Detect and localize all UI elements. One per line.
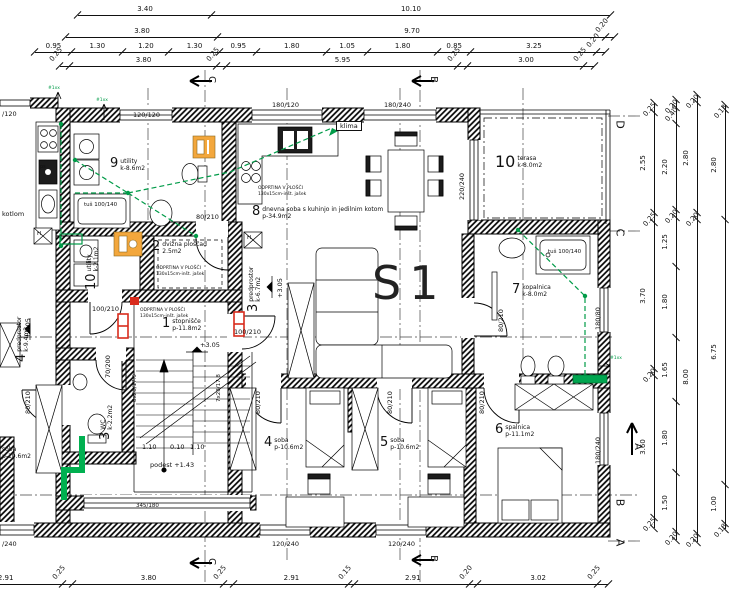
dim-value: 1.20 (138, 42, 154, 50)
room-number: 7 (512, 284, 520, 296)
dim-value: 3.80 (141, 574, 157, 582)
room-name: predprostor (248, 267, 255, 302)
dim-segment: 0.25 (641, 518, 654, 528)
stair-spec: 7x28/17.8 (216, 374, 222, 402)
dim-chain-top-1: 3.4010.10 (78, 2, 610, 16)
dim-value: 5.95 (335, 56, 351, 64)
room-area: k-6.7m2 (255, 267, 262, 302)
opening-label: 345/180 (136, 503, 159, 509)
dim-value: 2.80 (682, 150, 690, 166)
room-label-living8: 8 dnevna soba s kuhinjo in jedilnim koto… (252, 206, 383, 220)
dim-segment: 1.05 (327, 39, 368, 52)
dim-chain-bottom-1: 2.910.253.800.252.910.152.910.203.020.25 (0, 571, 608, 585)
window-label: 180/240 (594, 437, 602, 464)
stair-dim: 1.10 (142, 443, 156, 451)
h-label: H (37, 231, 41, 237)
dim-chain-top-3: 0.951.301.201.300.951.801.051.800.853.25… (35, 39, 605, 53)
dim-segment: 3.02 (478, 571, 598, 584)
dim-segment: 1.50 (663, 473, 676, 532)
door-label: 80/210 (386, 391, 394, 414)
dim-segment: 3.80 (66, 24, 218, 37)
dim-value: 3.40 (137, 5, 153, 13)
dim-segment: 1.80 (663, 267, 676, 338)
room-label-soba5: 5 sobap-10.6m2 (380, 437, 419, 451)
section-letter: C (206, 558, 217, 565)
dim-segment: 1.80 (257, 39, 327, 52)
room-name: predprostor (16, 317, 23, 352)
dim-segment: 0.20 (606, 24, 614, 37)
note-line1: ODPRTINA V PLOŠČI (156, 266, 201, 271)
room-area: p-11.1m2 (505, 431, 534, 438)
room-label-utility10-small: 10 utilityk-2.1m2 (86, 247, 100, 290)
dim-segment: 1.80 (663, 402, 676, 473)
room-number: 6 (495, 424, 503, 436)
room-label-spalnica6: 6 spalnicap-11.1m2 (495, 424, 534, 438)
dim-segment: 1.00 (712, 485, 725, 524)
room-name: soba (390, 437, 419, 444)
section-letter: B (428, 76, 439, 83)
window-label: /120 (2, 110, 17, 118)
dim-value: 3.70 (639, 288, 647, 304)
door-label: 80/210 (196, 213, 219, 221)
dim-segment: 6.75 (712, 220, 725, 485)
room-number: 4 (16, 354, 28, 362)
dim-segment: 0.25 (584, 53, 594, 66)
room-area: p-11.8m2 (172, 325, 201, 332)
dim-value: 3.25 (526, 42, 542, 50)
room-area: 2.5m2 (162, 248, 207, 255)
stair-dim: 1.10 (190, 443, 204, 451)
level-label: +3.05 (200, 341, 220, 349)
axis-letter-c: C (613, 229, 626, 237)
landing-label: podest +1.43 (150, 461, 194, 469)
dim-value: 3.00 (518, 56, 534, 64)
stair-dim: 0.10 (170, 443, 184, 451)
dim-segment: 0.25 (60, 53, 70, 66)
riser-label: #1xx (48, 86, 60, 91)
room-number: 2 (152, 241, 160, 253)
room-area: k-2.1m2 (93, 247, 100, 272)
room-area: k-8.0m2 (517, 162, 542, 169)
kitchen-counter-left (36, 122, 60, 230)
dim-segment: 0.20 (684, 534, 697, 542)
dim-segment: 2.91 (234, 571, 349, 584)
window-label: 180/120 (272, 101, 299, 109)
dim-value: 3.80 (136, 56, 152, 64)
window-label: 120/240 (272, 540, 299, 548)
window-label: 120/240 (388, 540, 415, 548)
cut-text: kotlom (2, 210, 24, 218)
window-label: 180/240 (384, 101, 411, 109)
section-letter: B (428, 555, 439, 562)
room-number: 4 (264, 437, 272, 449)
shower-label: tuš 100/140 (84, 202, 117, 208)
room-area: p-10.6m2 (2, 453, 31, 460)
dim-value: 8.00 (682, 369, 690, 385)
room-number: 5 (380, 437, 388, 449)
room-number: 8 (252, 206, 260, 218)
dim-chain-top-2: 3.809.700.20 (66, 24, 614, 38)
dim-segment: 8.00 (684, 220, 697, 534)
door-label: 100/210 (234, 328, 261, 336)
dim-segment: 3.40 (78, 2, 212, 15)
apartment-id: S1 (372, 256, 446, 310)
floor-plan-canvas: S1 9 utilityk-8.6m2 8 dnevna soba s kuhi… (0, 0, 748, 600)
dim-value: 0.95 (230, 42, 246, 50)
desks (286, 474, 464, 527)
dim-value: 1.80 (661, 294, 669, 310)
room-area: p-34.9m2 (262, 213, 383, 220)
slab-opening-note: ODPRTINA V PLOŠČI 130x15cm-inšt. jašek (156, 266, 204, 278)
dim-segment: 0.25 (458, 53, 468, 66)
dim-value: 1.50 (661, 495, 669, 511)
h-label: H (247, 235, 251, 241)
dim-segment: 0.25 (224, 571, 234, 584)
shower-label: tuš 100/140 (548, 249, 581, 255)
room-area: p-10.6m2 (274, 444, 303, 451)
dim-value: 1.80 (395, 42, 411, 50)
dim-value: 9.70 (404, 27, 420, 35)
window-label: /240 (2, 540, 17, 548)
dim-chain-right-1: 0.252.550.253.700.203.600.25 (641, 103, 655, 528)
dim-segment: 9.70 (218, 24, 606, 37)
level-label: +3.05 (24, 318, 32, 338)
dim-value: 2.91 (284, 574, 300, 582)
dim-chain-right-2: 0.200.402.200.201.251.801.651.801.500.20 (663, 100, 677, 540)
room-name: utility (120, 158, 145, 165)
dim-segment: 3.80 (70, 53, 218, 66)
dim-segment: 5.95 (227, 53, 458, 66)
door-label: 100/210 (92, 305, 119, 313)
window-label: 120/120 (133, 111, 160, 119)
dim-chain-right-3: 0.202.800.208.000.20 (684, 95, 698, 542)
riser-label: #1xx (96, 98, 108, 103)
note-line2: 130x15cm-inšt. jašek (140, 314, 188, 319)
klima-label: klima (336, 121, 362, 131)
room-label-soba4: 4 sobap-10.6m2 (264, 437, 303, 451)
dim-segment: 10.10 (212, 2, 610, 15)
door-label: 80/210 (24, 391, 32, 414)
room-name: dnevna soba s kuhinjo in jedilnim kotom (262, 206, 383, 213)
room-area: k-2.2m2 (107, 405, 114, 430)
dim-segment: 1.65 (663, 338, 676, 403)
room-number: 10 (86, 273, 98, 290)
dim-chain-right-4: 0.132.806.751.000.13 (712, 105, 726, 529)
room-label-lift2: 2 dvižna ploščad2.5m2 (152, 241, 207, 255)
ps-label: ps (40, 164, 46, 170)
dim-value: 1.25 (661, 235, 669, 251)
dim-segment: 1.30 (72, 39, 123, 52)
dim-segment: 0.95 (220, 39, 257, 52)
section-letter: C (206, 76, 217, 83)
riser-label: #1xx (610, 356, 622, 361)
dim-segment: 1.80 (368, 39, 438, 52)
stair-spec: 8x28/17.9 (132, 374, 138, 402)
room-label-stair1: 1 stopniščep-11.8m2 (162, 318, 201, 332)
dim-chain-top-4: 0.253.800.255.950.253.000.25 (60, 53, 594, 67)
dim-value: 3.02 (530, 574, 546, 582)
dim-segment: 0.20 (663, 532, 676, 540)
dim-segment: 0.25 (598, 571, 608, 584)
section-letter: A (632, 443, 643, 450)
door-label: 80/210 (254, 391, 262, 414)
dim-segment: 2.55 (641, 113, 654, 213)
room-name: WC (100, 405, 107, 430)
room-name: kopalnica (522, 284, 551, 291)
note-line1: ODPRTINA V PLOŠČI (258, 186, 303, 191)
room-label-wc3: 3 WCk-2.2m2 (100, 405, 114, 440)
dim-value: 1.30 (187, 42, 203, 50)
door-label: 80/210 (478, 391, 486, 414)
room-number: 10 (495, 155, 515, 169)
room-number: 3 (248, 304, 260, 312)
room-name: terasa (517, 155, 542, 162)
room-name: utility (86, 247, 93, 272)
door-label: 70/200 (104, 355, 112, 378)
room-area: p-10.6m2 (390, 444, 419, 451)
dim-value: 10.10 (401, 5, 421, 13)
dim-value: 1.65 (661, 362, 669, 378)
section-arrow-icon (622, 415, 648, 459)
room-number: 9 (110, 158, 118, 170)
slab-opening-note: ODPRTINA V PLOŠČI 130x15cm-inšt. jašek (140, 308, 188, 320)
dim-value: 2.55 (639, 155, 647, 171)
axis-letter-a: A (613, 539, 626, 547)
room-name: soba (2, 446, 31, 453)
room-label-hall3: 3 predprostork-6.7m2 (248, 267, 262, 312)
dim-segment: 3.00 (468, 53, 585, 66)
dim-segment: 0.25 (217, 53, 227, 66)
dim-segment: 2.80 (684, 103, 697, 213)
room-name: spalnica (505, 424, 534, 431)
dim-value: 1.30 (89, 42, 105, 50)
room-number: 1 (162, 318, 170, 330)
dim-segment: 2.20 (663, 124, 676, 210)
note-line1: ODPRTINA V PLOŠČI (140, 308, 185, 313)
dim-value: 1.00 (710, 496, 718, 512)
room-name: soba (274, 437, 303, 444)
dim-segment: 2.80 (712, 110, 725, 220)
dim-value: 6.75 (710, 344, 718, 360)
dim-value: 1.80 (661, 430, 669, 446)
dim-value: 3.80 (134, 27, 150, 35)
dim-segment: 0.20 (597, 39, 605, 52)
room-label-utility9: 9 utilityk-8.6m2 (110, 158, 145, 172)
axis-letter-b: B (613, 499, 626, 507)
room-name: dvižna ploščad (162, 241, 207, 248)
dim-value: 1.05 (339, 42, 355, 50)
room-label-terrace10: 10 terasak-8.0m2 (495, 155, 542, 169)
dim-value: 2.80 (710, 157, 718, 173)
dim-segment: 1.25 (663, 218, 676, 267)
axis-letter-d: D (614, 120, 627, 128)
slab-opening-note: ODPRTINA V PLOŠČI 130x15cm-inšt. jašek (258, 186, 306, 198)
dim-segment: 1.20 (123, 39, 170, 52)
room-number: 3 (100, 432, 112, 440)
door-label: 80/210 (497, 309, 505, 332)
window-label: 180/80 (594, 307, 602, 330)
window-label: 220/240 (458, 173, 466, 200)
level-label: +3.05 (276, 278, 284, 298)
room-area: k-8.6m2 (120, 165, 145, 172)
dim-segment: 0.13 (712, 524, 725, 529)
dim-value: 1.80 (284, 42, 300, 50)
note-line2: 130x15cm-inšt. jašek (156, 272, 204, 277)
dim-value: 2.20 (661, 159, 669, 175)
note-line2: 130x15cm-inšt. jašek (258, 192, 306, 197)
room-label-bath7: 7 kopalnicak-8.0m2 (512, 284, 551, 298)
room-label-soba-left: sobap-10.6m2 (2, 446, 31, 460)
room-area: k-8.0m2 (522, 291, 551, 298)
bathroom7-fixtures (492, 236, 590, 384)
dim-value: 2.91 (0, 574, 13, 582)
dim-segment: 3.70 (641, 223, 654, 369)
